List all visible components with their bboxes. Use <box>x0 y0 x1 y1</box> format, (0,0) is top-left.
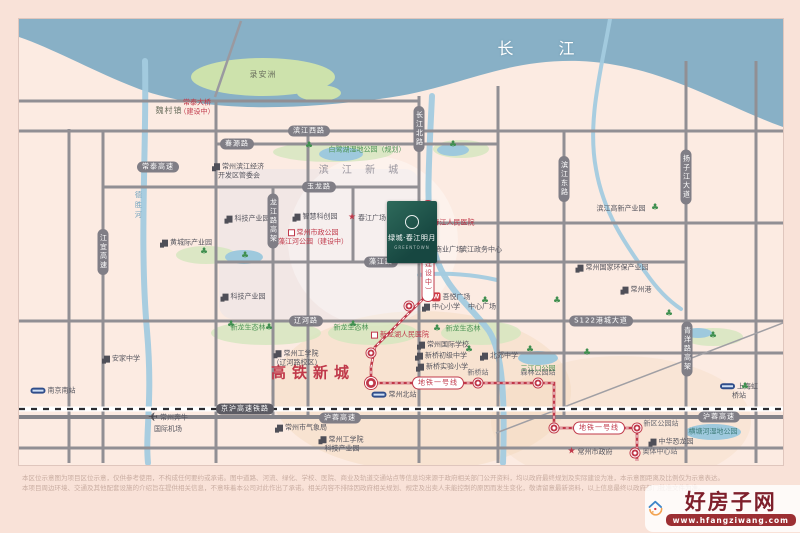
changjiang-north-rd-pill: 长江北路 <box>414 106 425 152</box>
project-marker[interactable]: 绿城·春江明月 GREENTOWN <box>387 201 437 263</box>
project-emblem-icon <box>405 215 419 229</box>
metro-station-6[interactable] <box>550 424 559 433</box>
yangtze-river-shape <box>19 19 783 127</box>
changtai-expwy-pill: 常泰高速 <box>137 162 179 173</box>
jinghu-hsr-pill: 京沪高速铁路 <box>216 404 274 415</box>
project-name: 绿城·春江明月 <box>388 233 436 243</box>
metro-station-5[interactable] <box>534 379 543 388</box>
watermark-text-wrap: 好房子网 www.hfangziwang.com <box>666 491 796 526</box>
metro-station-7[interactable] <box>633 424 642 433</box>
island-2-shape <box>297 85 341 101</box>
hurong-expwy-pill-2: 沪蓉高速 <box>698 412 740 423</box>
s122-gangcheng-ave-pill: S122港城大道 <box>569 316 633 327</box>
green-patch-1 <box>328 321 418 345</box>
metro-station-8[interactable] <box>631 449 640 458</box>
location-map-frame: 长 江录安洲魏村镇常泰大桥 （建设中）滨 江 新 城滨江高新产业园高铁新城常州滨… <box>0 0 800 533</box>
hurong-expwy-pill-1: 沪蓉高速 <box>319 413 361 424</box>
stream-0 <box>143 61 149 463</box>
metro-station-4[interactable] <box>474 379 483 388</box>
house-logo-icon <box>647 488 664 530</box>
metro-station-2[interactable] <box>367 349 376 358</box>
binjiang-west-rd-pill: 滨江西路 <box>288 126 330 137</box>
yulong-rd-pill: 玉龙路 <box>302 182 336 193</box>
site-watermark[interactable]: 好房子网 www.hfangziwang.com <box>645 485 800 532</box>
jiangyi-expwy-pill: 江宜高速 <box>98 229 109 275</box>
longjiang-viaduct-pill: 龙江路高架 <box>268 194 279 249</box>
yangzijiang-ave-pill: 扬子江大道 <box>681 150 692 205</box>
project-subtitle: GREENTOWN <box>394 245 429 250</box>
watermark-url[interactable]: www.hfangziwang.com <box>666 514 796 526</box>
lake-1 <box>437 144 469 156</box>
binjiang-east-rd-pill: 滨江东路 <box>559 156 570 202</box>
disclaimer-line-1: 本区位示意图为项目区位示意，仅供参考使用，不构成任何要约或承诺。图中道路、河流、… <box>22 474 778 484</box>
map-area: 长 江录安洲魏村镇常泰大桥 （建设中）滨 江 新 城滨江高新产业园高铁新城常州滨… <box>18 18 784 466</box>
metro-station-3[interactable] <box>365 377 377 389</box>
chunyuan-rd-pill: 春源路 <box>220 139 254 150</box>
qingyang-viaduct-pill: 青洋路高架 <box>682 322 693 377</box>
liaohe-rd-pill: 辽河路 <box>289 316 323 327</box>
metro-line1-pill-1: 地铁一号线 <box>412 377 464 390</box>
lake-4 <box>685 424 741 440</box>
lake-0 <box>319 147 363 161</box>
metro-line1-pill-2: 地铁一号线 <box>573 422 625 435</box>
watermark-site-name: 好房子网 <box>685 491 777 512</box>
metro-station-1[interactable] <box>405 302 414 311</box>
